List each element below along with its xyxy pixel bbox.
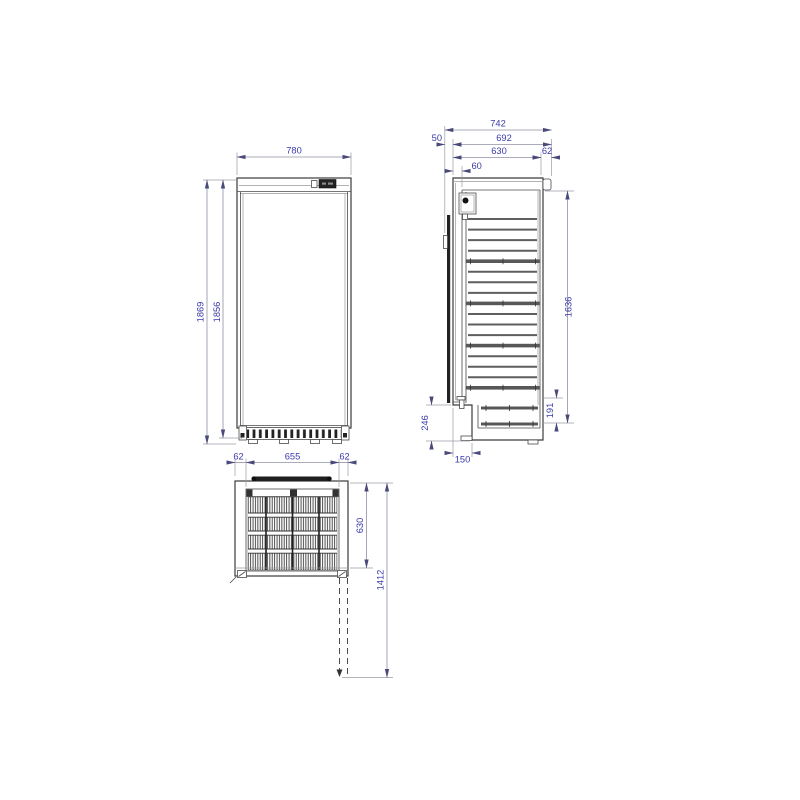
dim-top-depths: 630 1412 bbox=[342, 483, 393, 678]
dim-label-body-depth: 630 bbox=[491, 146, 507, 156]
dim-label-recess-height: 246 bbox=[420, 415, 430, 431]
dim-label-rear-gap: 62 bbox=[542, 146, 552, 156]
side-view bbox=[444, 178, 552, 444]
front-feet bbox=[249, 440, 342, 444]
dim-label-right-inset: 62 bbox=[339, 452, 349, 462]
dim-label-left-inset: 62 bbox=[233, 452, 243, 462]
dim-label-handle-depth: 50 bbox=[432, 133, 442, 143]
dim-label-door-thickness: 60 bbox=[472, 161, 482, 171]
hinge-cover bbox=[543, 179, 551, 190]
door-swing-dashed bbox=[337, 578, 348, 677]
dim-label-height-body: 1856 bbox=[212, 302, 222, 323]
grille-slats bbox=[247, 430, 341, 439]
top-view bbox=[230, 476, 348, 677]
handle-bracket bbox=[444, 236, 448, 249]
dim-label-interior-height: 1636 bbox=[564, 297, 574, 318]
dim-label-recess-depth: 150 bbox=[455, 455, 471, 465]
door-handle-top bbox=[252, 477, 332, 482]
side-foot-front bbox=[461, 436, 472, 441]
dim-front-width: 780 bbox=[237, 146, 351, 176]
dim-label-depth-with-door: 692 bbox=[496, 133, 512, 143]
refrigerator-drawing: 780 1869 1856 bbox=[0, 0, 800, 800]
dim-label-grille-width: 655 bbox=[285, 452, 301, 462]
front-view bbox=[237, 178, 351, 444]
dim-label-open-door-depth: 1412 bbox=[376, 570, 386, 591]
control-panel-button bbox=[312, 181, 318, 188]
dim-label-base-height: 191 bbox=[545, 403, 555, 419]
control-panel-display bbox=[319, 180, 336, 189]
dim-label-front-width: 780 bbox=[286, 146, 302, 156]
dim-front-heights: 1869 1856 bbox=[196, 180, 243, 444]
side-foot-rear bbox=[528, 440, 538, 444]
dim-side-heights: 1636 191 bbox=[543, 191, 574, 431]
dim-label-depth-total: 742 bbox=[490, 119, 506, 129]
technical-drawing-canvas: 780 1869 1856 bbox=[0, 0, 800, 800]
dim-label-height-total: 1869 bbox=[196, 302, 206, 323]
front-cabinet-outline bbox=[237, 178, 351, 428]
dim-label-top-body-depth: 630 bbox=[355, 518, 365, 534]
